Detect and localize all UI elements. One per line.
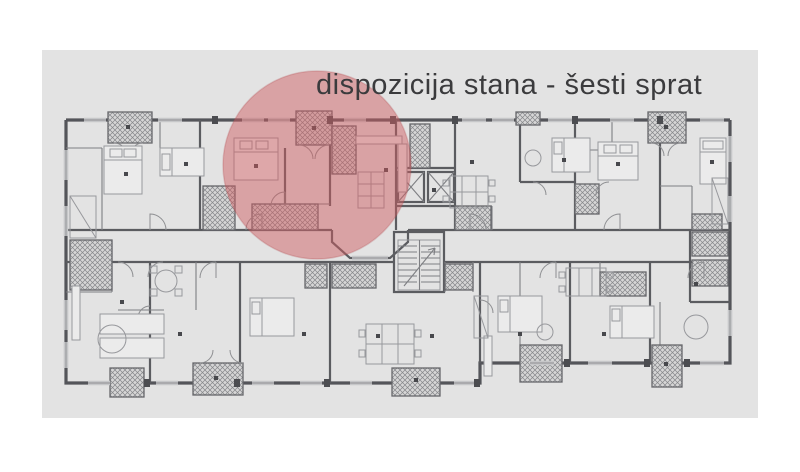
shaft-core: [410, 124, 430, 168]
screenshot-root: dispozicija stana - šesti sprat: [0, 0, 800, 472]
kitchen-b2: [332, 264, 376, 288]
sofa: [72, 286, 80, 340]
bathroom-apt3: [575, 184, 599, 214]
bed: [104, 146, 142, 194]
bed: [610, 306, 654, 338]
vent-shaft-top: [516, 112, 540, 125]
kitchen-b1b: [305, 264, 327, 288]
bathroom-wing-a: [692, 232, 728, 256]
balcony-bottom-1: [110, 368, 144, 397]
bed: [598, 142, 638, 180]
bathroom-b1: [70, 240, 112, 290]
bathroom-stair-side: [445, 264, 473, 290]
page-title: dispozicija stana - šesti sprat: [316, 70, 702, 100]
bed: [160, 148, 204, 176]
bed: [552, 138, 590, 172]
sofa: [484, 336, 492, 376]
bed: [498, 296, 542, 332]
bed: [250, 298, 294, 336]
bathroom-apt4: [692, 214, 722, 230]
